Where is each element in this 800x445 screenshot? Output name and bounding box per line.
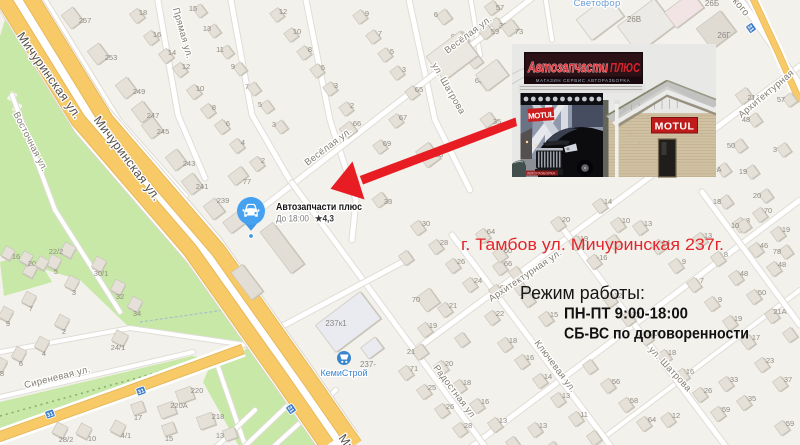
svg-text:70: 70	[412, 295, 420, 304]
svg-text:20: 20	[753, 191, 761, 200]
svg-text:18: 18	[139, 8, 147, 17]
svg-text:65: 65	[415, 85, 423, 94]
svg-text:19: 19	[739, 167, 747, 176]
svg-text:218: 218	[212, 412, 225, 421]
svg-text:19: 19	[782, 225, 790, 234]
svg-text:220А: 220А	[170, 401, 188, 410]
svg-text:59: 59	[491, 27, 499, 36]
svg-text:3: 3	[773, 145, 777, 154]
svg-text:48: 48	[740, 269, 748, 278]
svg-text:50: 50	[727, 141, 735, 150]
svg-text:9: 9	[718, 295, 722, 304]
svg-text:59: 59	[786, 419, 794, 428]
svg-text:MOTUL: MOTUL	[655, 121, 695, 133]
svg-text:57: 57	[777, 95, 785, 104]
svg-text:3: 3	[272, 120, 276, 129]
svg-text:18: 18	[463, 378, 471, 387]
svg-text:-16: -16	[597, 253, 608, 262]
svg-text:г. Тамбов ул. Мичуринская 237г: г. Тамбов ул. Мичуринская 237г.	[461, 235, 724, 254]
svg-text:30: 30	[422, 219, 430, 228]
svg-text:24: 24	[474, 276, 482, 285]
svg-text:28/2: 28/2	[59, 435, 74, 444]
svg-text:4: 4	[241, 138, 245, 147]
svg-text:20: 20	[28, 259, 36, 268]
svg-text:Светофор: Светофор	[573, 0, 620, 9]
svg-text:26Г: 26Г	[717, 31, 731, 40]
svg-text:64: 64	[648, 415, 656, 424]
svg-text:MOTUL: MOTUL	[528, 110, 555, 121]
svg-text:16: 16	[526, 353, 534, 362]
svg-text:13: 13	[499, 416, 507, 425]
svg-text:7: 7	[245, 82, 249, 91]
svg-text:12: 12	[279, 7, 287, 16]
svg-text:33: 33	[730, 375, 738, 384]
svg-text:10: 10	[88, 434, 96, 443]
svg-text:2: 2	[261, 156, 265, 165]
svg-text:ПЛЮС: ПЛЮС	[610, 60, 640, 75]
svg-text:21: 21	[407, 347, 415, 356]
svg-text:13: 13	[644, 219, 652, 228]
svg-text:18: 18	[509, 336, 517, 345]
svg-text:12: 12	[672, 411, 680, 420]
svg-text:46: 46	[760, 241, 768, 250]
svg-text:19: 19	[429, 321, 437, 330]
svg-text:78: 78	[773, 247, 781, 256]
svg-text:9: 9	[231, 62, 235, 71]
svg-text:245: 245	[157, 127, 170, 136]
svg-text:10: 10	[622, 216, 630, 225]
svg-text:239: 239	[217, 196, 230, 205]
svg-text:56: 56	[612, 377, 620, 386]
svg-text:70: 70	[764, 206, 772, 215]
svg-text:15: 15	[189, 4, 197, 13]
svg-text:37: 37	[784, 375, 792, 384]
svg-text:2: 2	[62, 327, 66, 336]
svg-text:Режим работы:: Режим работы:	[520, 282, 645, 303]
svg-text:10: 10	[196, 84, 204, 93]
svg-text:6: 6	[19, 359, 23, 368]
svg-text:66: 66	[353, 119, 361, 128]
svg-text:9: 9	[682, 257, 686, 266]
svg-text:3: 3	[334, 81, 338, 90]
svg-text:26: 26	[446, 402, 454, 411]
svg-text:30/1: 30/1	[94, 269, 109, 278]
svg-text:50: 50	[758, 288, 766, 297]
svg-text:24/1: 24/1	[111, 343, 126, 352]
svg-text:71: 71	[410, 364, 418, 373]
svg-text:22: 22	[496, 309, 504, 318]
svg-text:253: 253	[105, 53, 118, 62]
svg-text:8: 8	[308, 45, 312, 54]
svg-text:23: 23	[766, 356, 774, 365]
svg-text:32: 32	[116, 292, 124, 301]
svg-text:15: 15	[165, 434, 173, 443]
svg-text:21А: 21А	[773, 307, 786, 316]
svg-text:69: 69	[383, 139, 391, 148]
svg-text:5: 5	[258, 100, 262, 109]
svg-text:21: 21	[449, 301, 457, 310]
svg-text:4: 4	[42, 349, 46, 358]
svg-text:14: 14	[168, 48, 176, 57]
svg-text:249: 249	[133, 87, 146, 96]
svg-text:КемиСтрой: КемиСтрой	[320, 368, 367, 378]
svg-text:До 18:00: До 18:00	[276, 214, 309, 224]
svg-text:35: 35	[748, 394, 756, 403]
svg-text:20: 20	[562, 215, 570, 224]
svg-text:9: 9	[6, 319, 10, 328]
svg-text:10: 10	[293, 27, 301, 36]
svg-text:34: 34	[133, 309, 141, 318]
svg-text:★4,3: ★4,3	[315, 214, 334, 224]
svg-text:59: 59	[722, 405, 730, 414]
svg-text:3: 3	[72, 288, 76, 297]
svg-text:8: 8	[0, 369, 4, 378]
svg-text:48: 48	[778, 260, 786, 269]
svg-text:18: 18	[713, 197, 721, 206]
svg-text:14: 14	[544, 372, 552, 381]
svg-text:57: 57	[496, 3, 504, 12]
svg-text:58: 58	[630, 396, 638, 405]
svg-text:26Б: 26Б	[705, 0, 719, 8]
svg-text:73: 73	[515, 27, 523, 36]
svg-text:12: 12	[182, 62, 190, 71]
svg-text:243: 243	[183, 159, 196, 168]
svg-text:28: 28	[440, 238, 448, 247]
svg-text:6: 6	[434, 10, 438, 19]
svg-text:9: 9	[365, 9, 369, 18]
svg-text:20: 20	[445, 359, 453, 368]
svg-text:237к1: 237к1	[325, 319, 347, 328]
svg-text:13: 13	[216, 431, 224, 440]
svg-text:13: 13	[203, 24, 211, 33]
svg-text:19: 19	[734, 314, 742, 323]
svg-text:16: 16	[481, 397, 489, 406]
svg-text:16: 16	[153, 30, 161, 39]
svg-text:220: 220	[191, 386, 204, 395]
svg-text:5: 5	[390, 47, 394, 56]
svg-text:14: 14	[604, 197, 612, 206]
svg-text:11: 11	[216, 45, 224, 54]
svg-text:7: 7	[700, 276, 704, 285]
svg-text:26В: 26В	[627, 15, 641, 24]
svg-text:МАГАЗИН СЕРВИС АВТОРАЗБОРКА: МАГАЗИН СЕРВИС АВТОРАЗБОРКА	[536, 78, 630, 83]
svg-text:26: 26	[457, 257, 465, 266]
svg-text:22/2: 22/2	[49, 247, 64, 256]
svg-text:26: 26	[704, 386, 712, 395]
svg-text:257: 257	[79, 16, 92, 25]
svg-text:11: 11	[580, 410, 588, 419]
svg-text:10: 10	[731, 221, 739, 230]
svg-text:5: 5	[321, 63, 325, 72]
svg-text:77: 77	[243, 177, 251, 186]
svg-text:13: 13	[539, 421, 547, 430]
svg-text:СБ-ВС по договоренности: СБ-ВС по договоренности	[564, 326, 749, 343]
svg-text:6: 6	[226, 119, 230, 128]
svg-text:7: 7	[378, 29, 382, 38]
svg-text:8: 8	[724, 250, 728, 259]
svg-text:28: 28	[464, 421, 472, 430]
svg-text:2: 2	[350, 101, 354, 110]
svg-text:241: 241	[196, 182, 209, 191]
svg-text:17: 17	[752, 333, 760, 342]
svg-text:25: 25	[428, 383, 436, 392]
svg-text:Автозапчасти плюс: Автозапчасти плюс	[276, 202, 362, 213]
svg-text:7: 7	[29, 304, 33, 313]
svg-text:АВТОРАЗБОРКА: АВТОРАЗБОРКА	[527, 172, 556, 176]
svg-text:5: 5	[54, 267, 58, 276]
svg-text:ПН-ПТ 9:00-18:00: ПН-ПТ 9:00-18:00	[564, 306, 688, 323]
svg-text:15: 15	[550, 310, 558, 319]
svg-text:33: 33	[384, 197, 392, 206]
svg-text:16: 16	[686, 367, 694, 376]
svg-text:4/1: 4/1	[121, 431, 131, 440]
svg-text:67: 67	[399, 113, 407, 122]
svg-text:17: 17	[134, 413, 142, 422]
svg-text:Автозапчасти: Автозапчасти	[527, 60, 608, 76]
svg-text:18: 18	[668, 348, 676, 357]
svg-text:8: 8	[212, 103, 216, 112]
svg-text:3: 3	[402, 65, 406, 74]
